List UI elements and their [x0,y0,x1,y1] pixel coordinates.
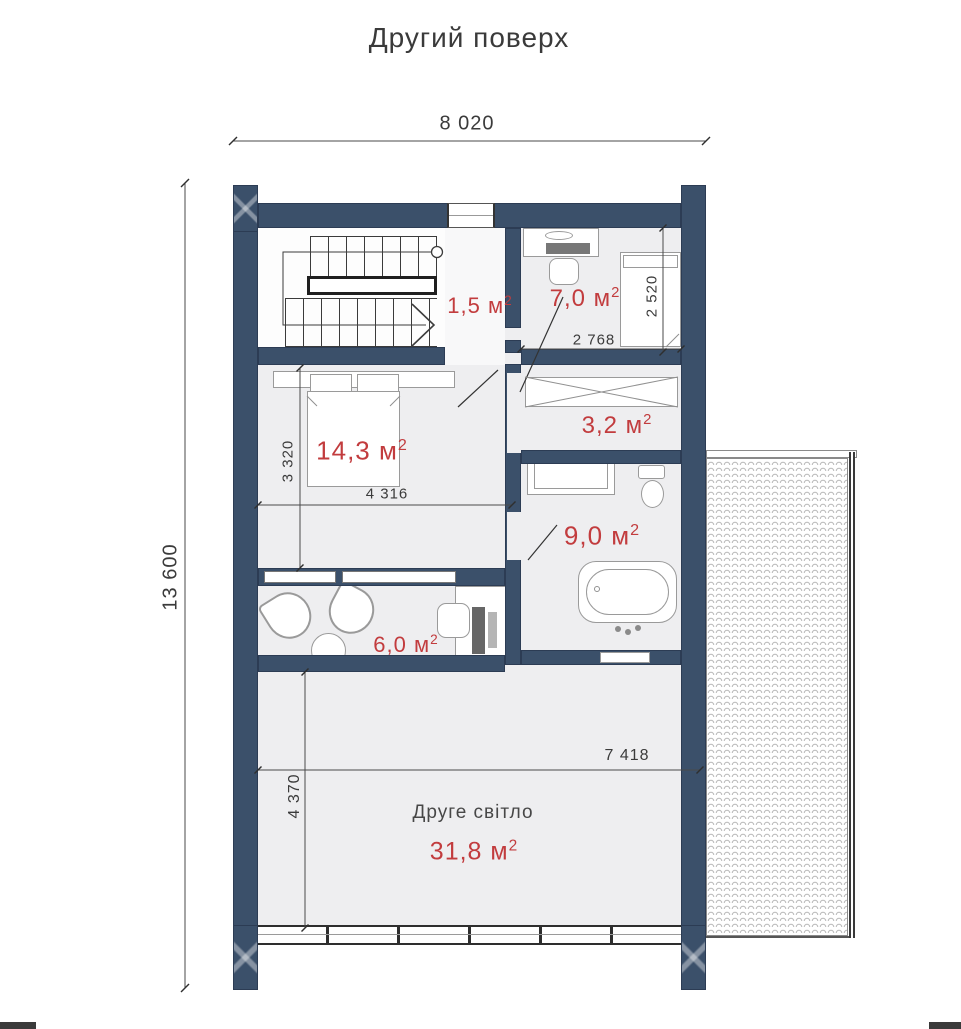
room-label-second-light: 31,8 м2 [430,837,518,866]
opening-bathroom-door [507,512,521,560]
cabinet-chair [549,258,579,285]
room-label-cabinet: 7,0 м2 [550,285,621,313]
dim-void-depth: 4 370 [286,773,304,818]
balcony-right-edge [849,452,855,938]
dim-overall-height: 13 600 [160,543,183,610]
wardrobe-cabinet [525,377,678,407]
stairs-handrail [307,276,437,295]
balcony-bottom-edge [706,934,849,938]
door-jamb-cabinet [505,340,521,353]
toilet-bowl [641,480,664,508]
opening-bedroom-wardrobe [507,373,521,453]
dim-overall-width: 8 020 [439,113,494,136]
bathtub-inner [586,569,669,615]
room-label-bedroom: 14,3 м2 [316,436,408,467]
top-window [447,203,495,228]
balcony-top-railing [706,450,857,458]
dim-cabinet-bed-length: 2 520 [644,275,661,318]
room-label-wardrobe: 3,2 м2 [582,412,653,440]
floor-plan-page: Другий поверх [0,0,961,1029]
dim-cabinet-width: 2 768 [573,332,616,349]
stairs-lower-flight [285,298,437,347]
room-label-bathroom: 9,0 м2 [564,521,640,552]
closet-left [264,571,336,583]
stairs-upper-flight [310,236,437,278]
dim-void-width: 7 418 [604,747,649,765]
wall-right [681,185,706,940]
cabinet-desk-lamp [545,231,573,240]
balcony-hatch [706,458,848,936]
dim-bedroom-width: 4 316 [366,486,409,503]
bathroom-bottom-inset [600,652,650,663]
pillar-top-left [233,185,258,232]
wall-cabinet-bottom [521,349,681,365]
cabinet-bed-pillow [623,255,678,268]
crop-artifact-right [929,1022,961,1029]
wall-stairhall-bottom [258,347,445,365]
wall-left [233,203,258,930]
bathroom-sink-basin [534,461,608,489]
second-light-label: Друге світло [412,802,533,824]
crop-artifact-left [0,1022,36,1029]
bottom-window-band [258,925,681,945]
cabinet-keyboard [546,243,590,254]
office-chair [437,603,470,638]
pillar-bottom-left [233,925,258,990]
dim-bedroom-depth: 3 320 [280,440,297,483]
office-monitor [472,607,485,654]
office-desk-panel [488,612,497,648]
room-label-office: 6,0 м2 [373,632,438,658]
bedroom-pillow-right [357,374,399,392]
page-title: Другий поверх [369,22,570,54]
toilet-tank [638,465,665,479]
pillar-bottom-right [681,925,706,990]
room-label-corridor: 1,5 м2 [447,293,512,319]
wall-bathroom-top [521,450,681,464]
bedroom-pillow-left [310,374,352,392]
closet-right [342,571,456,583]
